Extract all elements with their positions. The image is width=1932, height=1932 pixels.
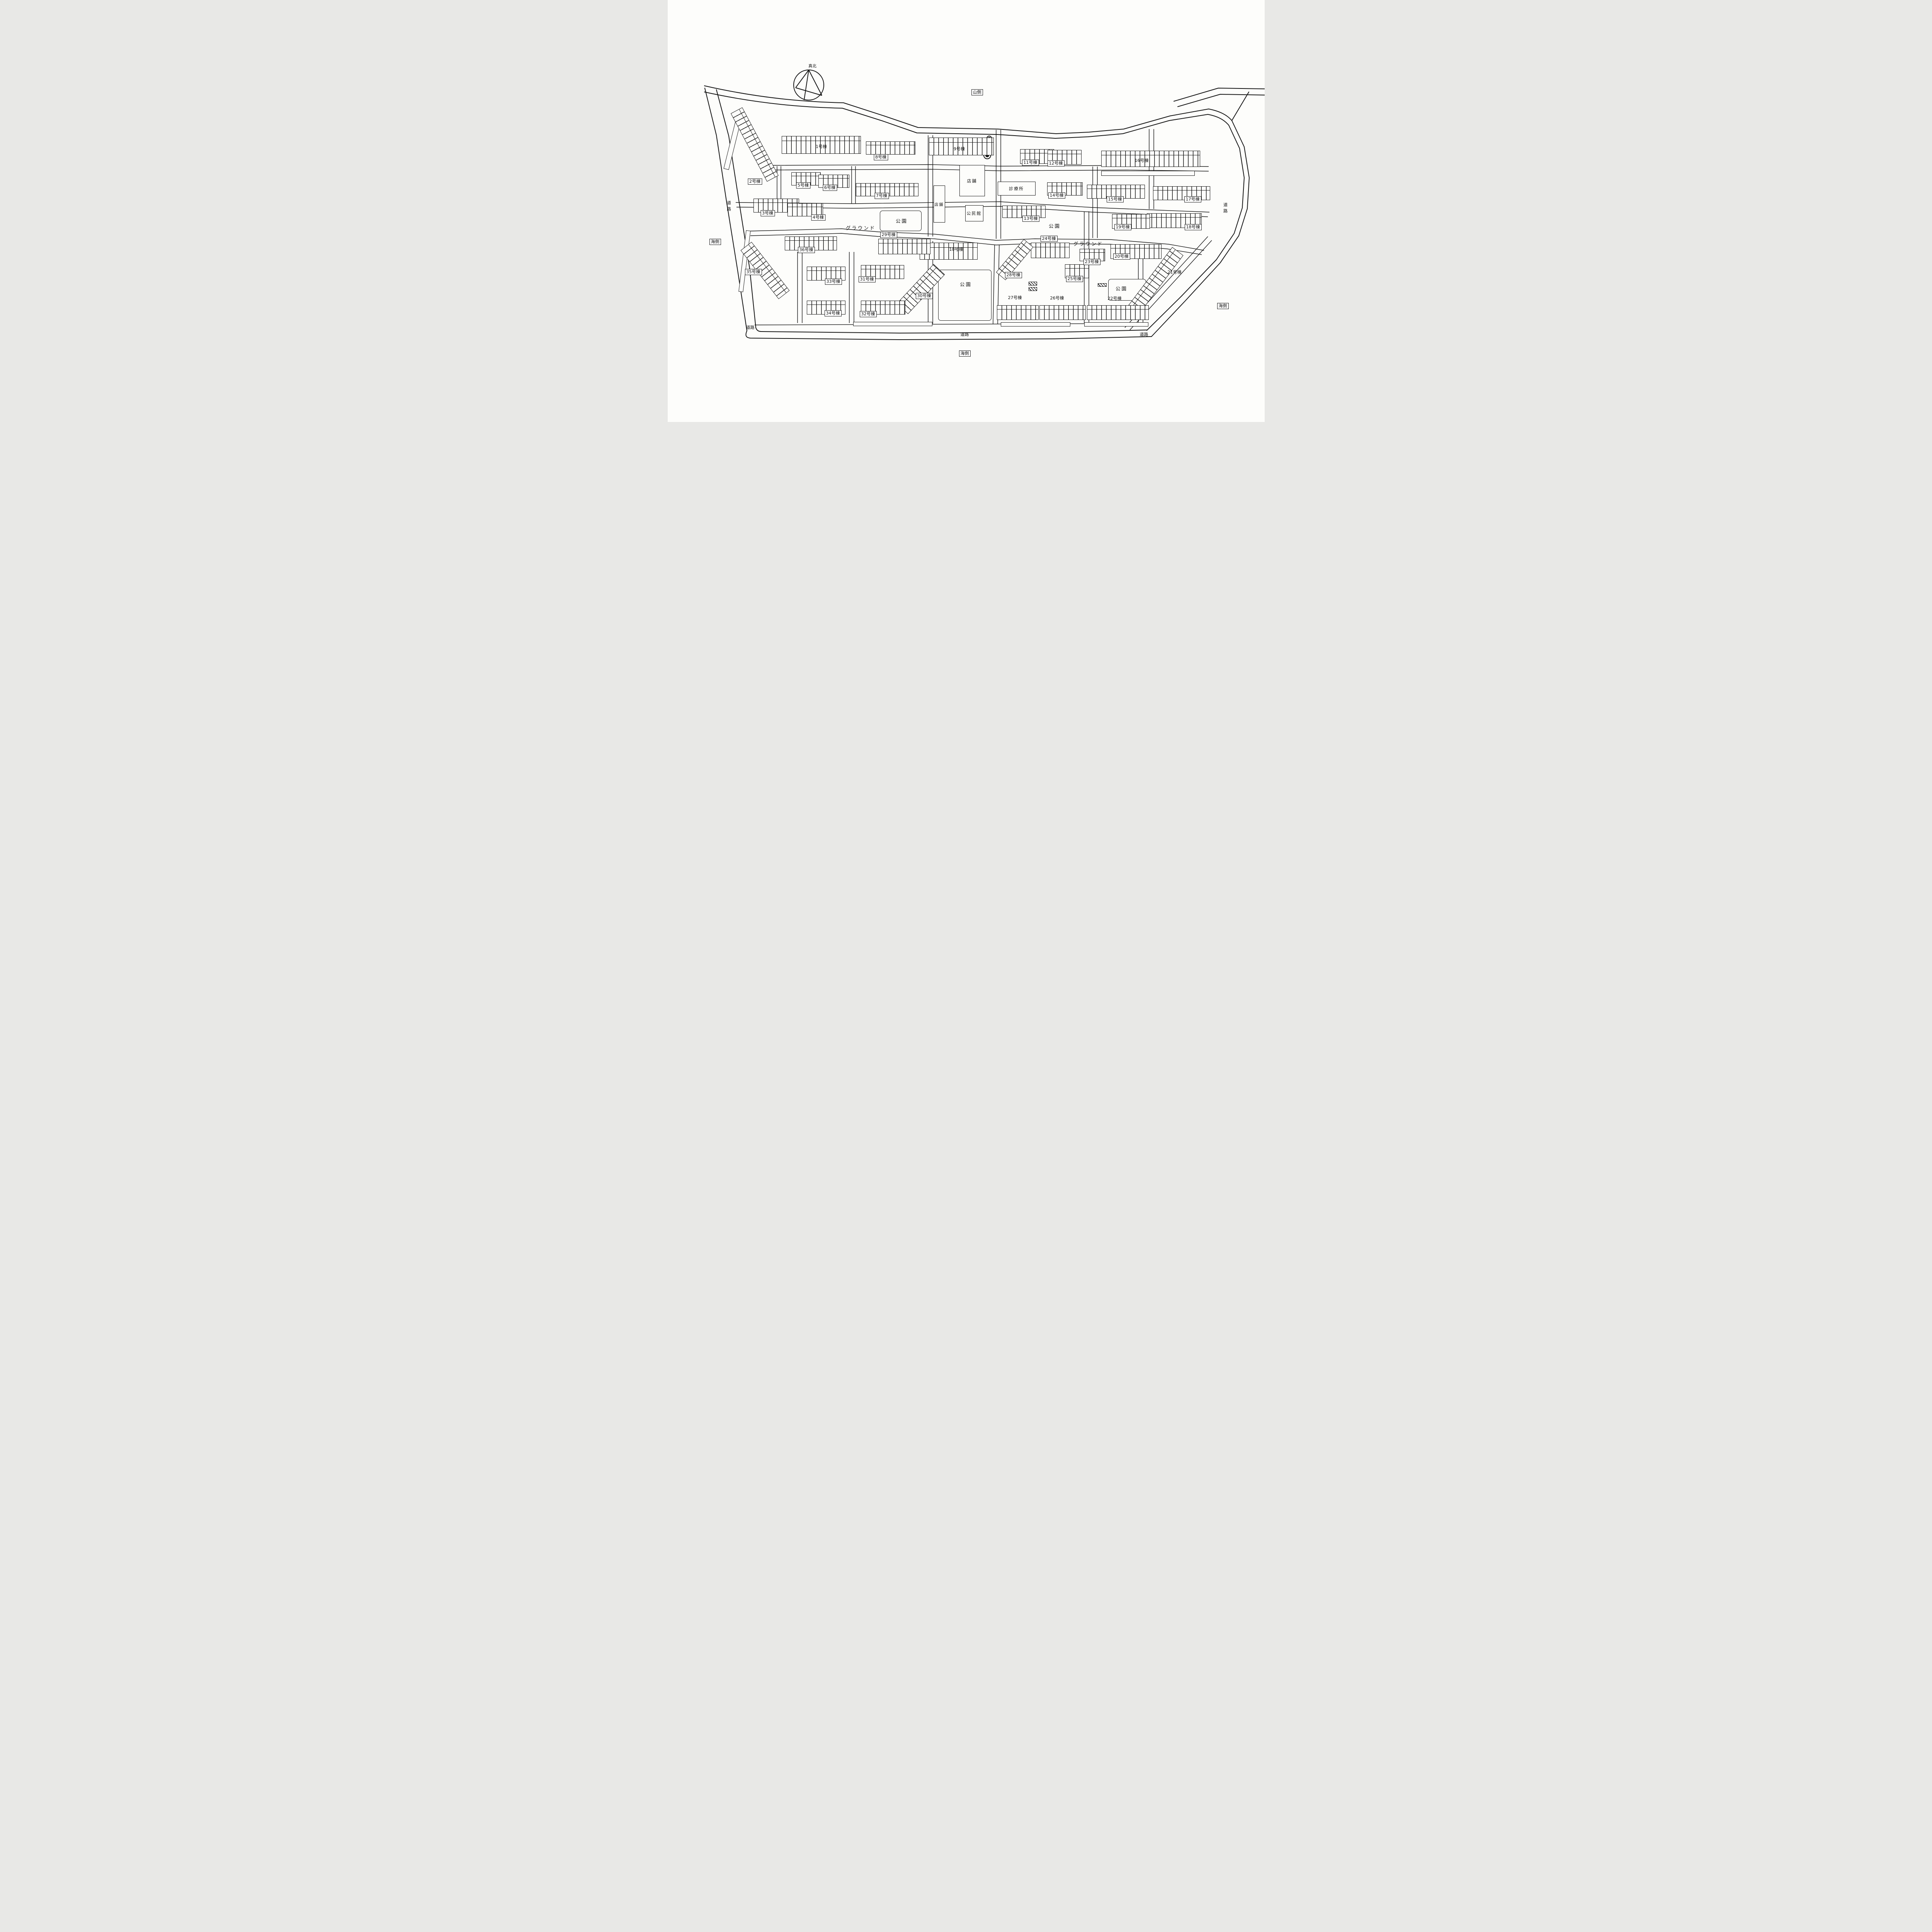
building-label: 14号棟 <box>1048 192 1065 199</box>
building-label: 22号棟 <box>1108 296 1122 301</box>
building-label: 24号棟 <box>1041 236 1058 242</box>
building-label: 13号棟 <box>1022 216 1039 222</box>
facility-building: 店舗 <box>959 165 985 196</box>
roadside-strip <box>1084 322 1148 327</box>
building-label: 1号棟 <box>816 145 827 149</box>
building-label: 23号棟 <box>1083 259 1100 265</box>
building-label: 2号棟 <box>748 179 762 185</box>
building-label: 12号棟 <box>1048 160 1065 167</box>
road-label: 道路 <box>746 325 755 330</box>
building-block <box>1087 305 1149 320</box>
building-block <box>1153 186 1210 200</box>
road-top-outer <box>704 86 1232 134</box>
facility-building: 公民館 <box>965 205 983 221</box>
true-north-label: 真北 <box>808 64 816 69</box>
road-label: 道路 <box>961 332 969 337</box>
road-label: 道路 <box>726 201 731 213</box>
building-block <box>866 141 915 155</box>
building-label: 16号棟 <box>1135 158 1149 163</box>
building-label: 21号棟 <box>1168 270 1182 275</box>
building-label: 31号棟 <box>859 276 876 282</box>
ground-label: グラウンド <box>1073 240 1104 247</box>
facility-label: 店舗 <box>967 178 977 184</box>
building-block <box>1031 243 1070 258</box>
building-label: 3号棟 <box>760 210 775 216</box>
roadside-strip <box>853 322 932 326</box>
sea-side-label: 海側 <box>959 350 971 357</box>
building-block <box>878 239 930 254</box>
building-label: 35号棟 <box>745 269 762 275</box>
building-label: 36号棟 <box>798 247 815 253</box>
building-label: 34号棟 <box>825 310 842 316</box>
road-label: 道路 <box>1223 202 1227 215</box>
site-plan-map: 公園公園公園公園グラウンドグラウンド店舗店舗公民館診療所1号棟2号棟3号棟4号棟… <box>668 0 1265 422</box>
building-label: 26号棟 <box>1050 296 1064 301</box>
facility-label: 公民館 <box>967 210 982 216</box>
building-label: 30号棟 <box>916 293 933 299</box>
ground-label: グラウンド <box>846 224 876 231</box>
building-label: 25号棟 <box>1066 276 1083 282</box>
facility-building: 店舗 <box>934 185 945 223</box>
park-label: 公園 <box>1116 285 1128 292</box>
park-area <box>938 270 992 321</box>
building-label: 18号棟 <box>1185 224 1202 230</box>
hatched-utility-box <box>1029 287 1037 291</box>
building-label: 29号棟 <box>880 232 897 238</box>
building-label: 33号棟 <box>825 279 842 285</box>
building-block <box>1039 305 1086 320</box>
building-label: 5号棟 <box>796 182 810 189</box>
hatched-utility-box <box>1029 282 1037 286</box>
road-label: 道路 <box>1140 332 1148 337</box>
road-topright-spur <box>1174 88 1265 121</box>
building-label: 32号棟 <box>860 311 877 317</box>
building-label: 6号棟 <box>823 185 837 191</box>
park-label: 公園 <box>1049 222 1061 230</box>
facility-label: 診療所 <box>1009 185 1024 192</box>
building-label: 27号棟 <box>1008 296 1022 300</box>
roadside-strip <box>1101 171 1195 176</box>
building-label: 9号棟 <box>954 147 965 151</box>
sea-side-label: 海側 <box>1217 303 1229 309</box>
building-label: 11号棟 <box>1022 160 1039 166</box>
building-block <box>1101 151 1200 167</box>
sea-side-label: 海側 <box>709 239 721 245</box>
compass-icon <box>794 70 824 100</box>
building-block <box>997 305 1039 320</box>
building-label: 10号棟 <box>949 247 963 252</box>
building-label: 4号棟 <box>811 214 825 221</box>
mountain-side-label: 山側 <box>971 89 983 95</box>
building-label: 19号棟 <box>1114 224 1131 230</box>
road-bottom-inner <box>756 328 1147 333</box>
facility-building: 診療所 <box>998 182 1036 196</box>
building-label: 7号棟 <box>874 193 889 199</box>
roadside-strip <box>1001 322 1070 327</box>
building-label: 20号棟 <box>1113 253 1130 260</box>
building-label: 8号棟 <box>874 154 888 160</box>
park-label: 公園 <box>896 217 908 224</box>
facility-label: 店舗 <box>935 201 944 207</box>
hatched-utility-box <box>1098 283 1107 287</box>
park-label: 公園 <box>960 281 972 288</box>
building-label: 17号棟 <box>1184 196 1201 202</box>
building-label: 15号棟 <box>1107 196 1124 202</box>
building-label: 28号棟 <box>1005 272 1022 278</box>
